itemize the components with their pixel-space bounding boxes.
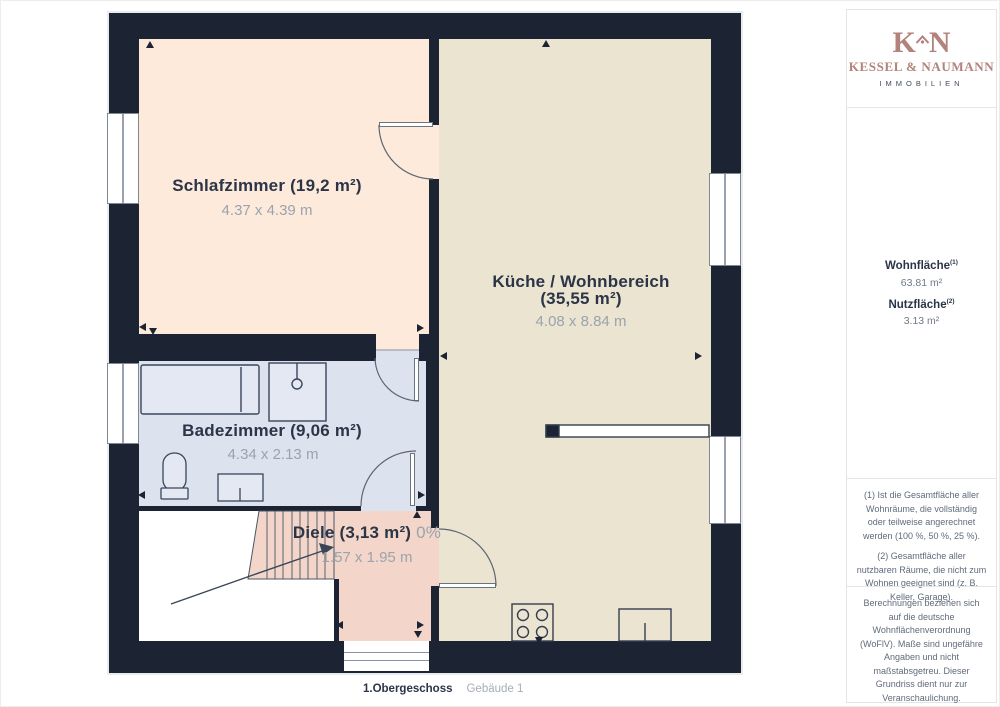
diele-share-percent: 0% bbox=[416, 523, 441, 542]
window-kueche-right-top bbox=[709, 173, 741, 266]
stat-nutzflaeche-value: 3.13 m² bbox=[888, 315, 954, 327]
info-sidebar: K N KESSEL & NAUMANN IMMOBILIEN Wohnfläc… bbox=[846, 9, 997, 703]
window-badezimmer-left bbox=[107, 363, 139, 444]
plan-footer: 1.Obergeschoss Gebäude 1 bbox=[363, 683, 523, 695]
stat-wohnflaeche-value: 63.81 m² bbox=[885, 277, 958, 289]
wall-seg-void-diele bbox=[334, 579, 339, 641]
door-opening-schlafzimmer-bad-bottom bbox=[376, 350, 419, 361]
dims-schlafzimmer: 4.37 x 4.39 m bbox=[222, 202, 313, 219]
floor-name: 1.Obergeschoss bbox=[363, 683, 452, 695]
building-name: Gebäude 1 bbox=[466, 683, 523, 695]
window-glass-line bbox=[724, 174, 726, 265]
room-kueche bbox=[439, 39, 711, 641]
window-glass-line bbox=[122, 364, 124, 443]
footnote-1: (1) Ist die Gesamtfläche aller Wohnräume… bbox=[856, 489, 987, 543]
stair-step-line bbox=[344, 652, 429, 653]
page: Schlafzimmer (19,2 m²) 4.37 x 4.39 m Küc… bbox=[0, 0, 1000, 707]
window-schlafzimmer-left bbox=[107, 113, 139, 204]
stair-step-line bbox=[344, 660, 429, 661]
footnotes-section: (1) Ist die Gesamtfläche aller Wohnräume… bbox=[847, 478, 996, 586]
logo-section: K N KESSEL & NAUMANN IMMOBILIEN bbox=[847, 10, 996, 107]
floorplan: Schlafzimmer (19,2 m²) 4.37 x 4.39 m Küc… bbox=[1, 1, 846, 707]
door-opening-schlafzimmer-bad-top bbox=[376, 334, 419, 350]
disclaimer-text: Berechnungen beziehen sich auf die deuts… bbox=[856, 597, 987, 705]
door-leaf-bad-diele bbox=[410, 453, 415, 506]
stat-nutzflaeche: Nutzfläche(2) 3.13 m² bbox=[888, 298, 954, 328]
brand-subtitle: IMMOBILIEN bbox=[879, 79, 963, 88]
disclaimer-section: Berechnungen beziehen sich auf die deuts… bbox=[847, 586, 996, 702]
label-kueche-line2: (35,55 m²) bbox=[540, 289, 621, 309]
window-kueche-right-bottom bbox=[709, 436, 741, 524]
area-stats-section: Wohnfläche(1) 63.81 m² Nutzfläche(2) 3.1… bbox=[847, 107, 996, 478]
dims-kueche: 4.08 x 8.84 m bbox=[536, 313, 627, 330]
stat-wohnflaeche: Wohnfläche(1) 63.81 m² bbox=[885, 259, 958, 289]
dims-diele: 1.57 x 1.95 m bbox=[322, 549, 413, 566]
label-diele: Diele (3,13 m²) 0% bbox=[293, 523, 441, 543]
stair-exit-opening bbox=[344, 641, 429, 671]
logo-monogram: K N bbox=[892, 30, 950, 56]
logo-letter-n: N bbox=[929, 30, 951, 56]
label-badezimmer: Badezimmer (9,06 m²) bbox=[182, 421, 362, 441]
brand-name: KESSEL & NAUMANN bbox=[849, 59, 994, 75]
label-schlafzimmer: Schlafzimmer (19,2 m²) bbox=[172, 176, 362, 196]
door-opening-schlafzimmer-kueche bbox=[429, 125, 439, 179]
door-leaf-schlafzimmer-kueche bbox=[379, 122, 433, 127]
door-leaf-schlafzimmer-bad bbox=[414, 358, 419, 401]
logo-letter-k: K bbox=[892, 30, 915, 56]
door-opening-bad-diele bbox=[361, 506, 416, 511]
window-glass-line bbox=[122, 114, 124, 203]
door-leaf-diele-kueche bbox=[439, 583, 496, 588]
house-icon bbox=[915, 34, 930, 56]
dims-badezimmer: 4.34 x 2.13 m bbox=[228, 446, 319, 463]
window-glass-line bbox=[724, 437, 726, 523]
